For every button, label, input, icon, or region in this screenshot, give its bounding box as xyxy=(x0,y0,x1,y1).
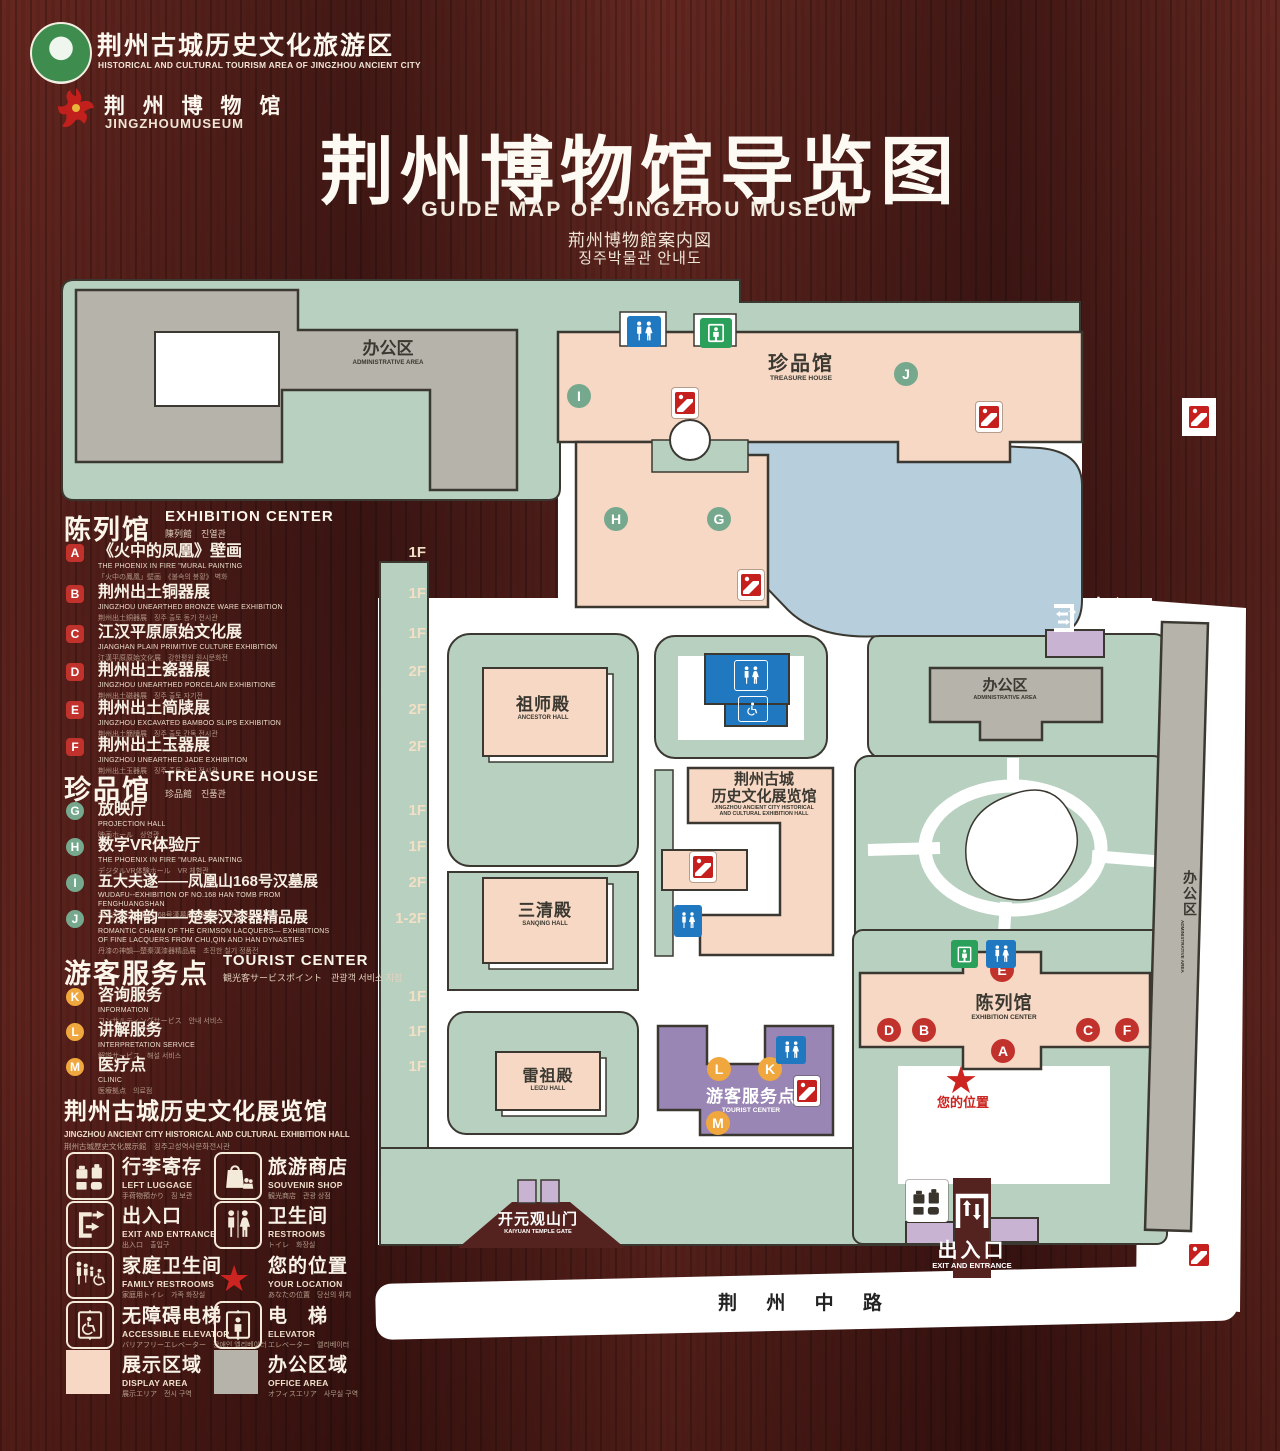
list-item-B: B 荆州出土铜器展 JINGZHOU UNEARTHED BRONZE WARE… xyxy=(66,585,366,623)
badge-F: F xyxy=(66,738,84,756)
label-exhibition-center: 陈列馆 EXHIBITION CENTER xyxy=(970,994,1039,1021)
badge-L: L xyxy=(66,1023,84,1041)
label-exhibition-hall: 荆州古城 历史文化展览馆 JINGZHOU ANCIENT CITY HISTO… xyxy=(711,772,816,817)
floor-J: 1-2F xyxy=(381,910,426,927)
label-treasure-house: 珍品馆 TREASURE HOUSE xyxy=(768,353,834,383)
elevator-icon xyxy=(951,940,978,968)
restroom-icon xyxy=(627,316,661,347)
accessible-elevator-icon xyxy=(66,1301,114,1349)
legend-left-luggage: 行李寄存 LEFT LUGGAGE 手荷物預かり 짐 보관 xyxy=(122,1152,202,1201)
badge-I: I xyxy=(66,874,84,892)
section-title-sub: 陳列館 진열관 xyxy=(165,527,334,540)
restroom-icon xyxy=(776,1036,806,1064)
list-item-M: M 医疗点 CLINIC 医療拠点 의료점 1F xyxy=(66,1058,366,1096)
section-title-en: EXHIBITION CENTER xyxy=(165,508,334,525)
section-title-sub: 珍品館 진품관 xyxy=(165,787,319,800)
floor-F: 2F xyxy=(381,738,426,755)
list-item-A: A 《火中的凤凰》壁画 THE PHOENIX IN FIRE "MURAL P… xyxy=(66,544,366,582)
exit-entrance-icon xyxy=(66,1201,114,1249)
restroom-icon xyxy=(986,940,1016,968)
label-admin-topleft: 办公区 ADMINISTRATIVE AREA xyxy=(351,340,426,366)
admin-topleft-courtyard xyxy=(155,332,279,406)
section-title-sub: 観光客サービスポイント 관광객 서비스 지점 xyxy=(223,971,402,984)
tourism-area-name: 荆州古城历史文化旅游区 xyxy=(97,26,394,62)
map-title-en: GUIDE MAP OF JINGZHOU MUSEUM xyxy=(421,198,858,222)
restrooms-icon xyxy=(214,1201,262,1249)
label-admin-right: 办公区 ADMINISTRATIVE AREA xyxy=(972,678,1039,701)
badge-E: E xyxy=(66,701,84,719)
exhibition-hall-header: 荆州古城历史文化展览馆 JINGZHOU ANCIENT CITY HISTOR… xyxy=(64,1092,384,1152)
section-exhibition-center-header: 陈列馆 EXHIBITION CENTER 陳列館 진열관 xyxy=(64,508,334,547)
escalator-icon xyxy=(1186,1240,1212,1270)
label-admin-strip: 办公区 ADMINISTRATIVE AREA xyxy=(1180,870,1200,973)
restroom-icon xyxy=(734,660,768,691)
floor-L: 1F xyxy=(381,1023,426,1040)
display-area-swatch xyxy=(66,1350,110,1394)
escalator-icon xyxy=(1186,402,1212,432)
marker-B: B xyxy=(912,1018,936,1042)
entrance-arrows-icon xyxy=(954,1192,990,1237)
marker-F: F xyxy=(1115,1018,1139,1042)
restroom-icon xyxy=(674,905,702,937)
section-title: 游客服务点 xyxy=(64,952,209,991)
label-your-location: 您的位置 xyxy=(937,1096,989,1110)
legend-restrooms: 卫生间 RESTROOMS トイレ 화장실 xyxy=(268,1201,328,1250)
legend-display-area: 展示区域 DISPLAY AREA 展示エリア 전시 구역 xyxy=(122,1350,202,1399)
marker-G: G xyxy=(707,507,731,531)
floor-I: 2F xyxy=(381,874,426,891)
label-exit-northeast: 出入口 EXIT AND ENTRANCE xyxy=(1083,598,1161,627)
tourism-area-logo xyxy=(30,22,92,84)
marker-C: C xyxy=(1076,1018,1100,1042)
section-title: 陈列馆 xyxy=(64,508,151,547)
marker-I: I xyxy=(567,384,591,408)
floor-K: 1F xyxy=(381,988,426,1005)
gate-kaiyuan-left xyxy=(518,1180,536,1203)
list-item-H: H 数字VR体验厅 THE PHOENIX IN FIRE "MURAL PAI… xyxy=(66,838,366,876)
list-item-K: K 咨询服务 INFORMATION コンサルティングサービス 안내 서비스 1… xyxy=(66,988,366,1026)
floor-D: 2F xyxy=(381,663,426,680)
list-item-L: L 讲解服务 INTERPRETATION SERVICE 解説サービス 해설 … xyxy=(66,1023,366,1061)
legend-your-location: 您的位置 YOUR LOCATION あなたの位置 당신의 위치 xyxy=(268,1251,351,1300)
museum-name-en: JINGZHOUMUSEUM xyxy=(105,116,244,131)
legend-office-area: 办公区域 OFFICE AREA オフィスエリア 사무실 구역 xyxy=(268,1350,358,1399)
floor-H: 1F xyxy=(381,838,426,855)
section-title-en: TREASURE HOUSE xyxy=(165,768,319,785)
plaza-exhibition xyxy=(898,1066,1110,1184)
left-luggage-icon xyxy=(906,1180,948,1222)
guide-map-poster: 荆州古城历史文化旅游区 HISTORICAL AND CULTURAL TOUR… xyxy=(0,0,1280,1451)
floor-B: 1F xyxy=(381,585,426,602)
label-kaiyuan-gate: 开元观山门 KAIYUAN TEMPLE GATE xyxy=(498,1212,578,1235)
escalator-icon xyxy=(690,852,716,882)
label-ancestor-hall: 祖师殿 ANCESTOR HALL xyxy=(516,696,570,722)
museum-logo xyxy=(54,86,98,132)
marker-M: M xyxy=(706,1111,730,1135)
your-location-icon: ★ xyxy=(218,1258,250,1300)
badge-B: B xyxy=(66,585,84,603)
marker-H: H xyxy=(604,507,628,531)
marker-D: D xyxy=(877,1018,901,1042)
entrance-arrows-icon xyxy=(1050,602,1082,639)
tourism-area-name-en: HISTORICAL AND CULTURAL TOURISM AREA OF … xyxy=(98,60,421,70)
elevator-icon xyxy=(700,318,732,348)
list-item-G: G 放映厅 PROJECTION HALL 映画ホール 상영관 1F xyxy=(66,802,366,840)
badge-K: K xyxy=(66,988,84,1006)
list-item-C: C 江汉平原原始文化展 JIANGHAN PLAIN PRIMITIVE CUL… xyxy=(66,625,366,663)
escalator-icon xyxy=(976,402,1002,432)
floor-C: 1F xyxy=(381,625,426,642)
annex-arch xyxy=(670,420,710,460)
elevator-icon xyxy=(214,1301,262,1349)
marker-A: A xyxy=(991,1039,1015,1063)
marker-J: J xyxy=(894,362,918,386)
hall-title-sub: 荆州古城歴史文化展示館 징주고성역사문화전시관 xyxy=(64,1141,384,1152)
badge-A: A xyxy=(66,544,84,562)
badge-H: H xyxy=(66,838,84,856)
map-title-ko: 징주박물관 안내도 xyxy=(578,247,702,268)
legend-souvenir-shop: 旅游商店 SOUVENIR SHOP 観光商店 관광 상점 xyxy=(268,1152,348,1201)
family-restrooms-icon xyxy=(66,1251,114,1299)
section-title-en: TOURIST CENTER xyxy=(223,952,402,969)
hall-title-en: JINGZHOU ANCIENT CITY HISTORICAL AND CUL… xyxy=(64,1130,384,1139)
label-road: 荆 州 中 路 xyxy=(718,1294,894,1315)
escalator-icon xyxy=(738,570,764,600)
legend-family-restrooms: 家庭卫生间 FAMILY RESTROOMS 家庭用トイレ 가족 화장실 xyxy=(122,1251,222,1300)
label-exit-south: 出入口 EXIT AND ENTRANCE xyxy=(930,1240,1014,1271)
souvenir-shop-icon xyxy=(214,1152,262,1200)
marker-L: L xyxy=(707,1057,731,1081)
hall-title: 荆州古城历史文化展览馆 xyxy=(64,1092,384,1126)
accessible-restroom-icon xyxy=(738,696,768,722)
legend-elevator: 电 梯 ELEVATOR エレベーター 엘리베이터 xyxy=(268,1301,349,1350)
floor-A: 1F xyxy=(381,544,426,561)
list-item-D: D 荆州出土瓷器展 JINGZHOU UNEARTHED PORCELAIN E… xyxy=(66,663,366,701)
badge-C: C xyxy=(66,625,84,643)
gate-south-right xyxy=(990,1218,1038,1242)
floor-G: 1F xyxy=(381,802,426,819)
escalator-icon xyxy=(794,1076,820,1106)
section-tourist-center-header: 游客服务点 TOURIST CENTER 観光客サービスポイント 관광객 서비스… xyxy=(64,952,402,991)
badge-D: D xyxy=(66,663,84,681)
list-item-J: J 丹漆神韵——楚秦汉漆器精品展 ROMANTIC CHARM OF THE C… xyxy=(66,910,366,956)
badge-G: G xyxy=(66,802,84,820)
floor-E: 2F xyxy=(381,701,426,718)
badge-M: M xyxy=(66,1058,84,1076)
left-luggage-icon xyxy=(66,1152,114,1200)
legend-exit-entrance: 出入口 EXIT AND ENTRANCE 出入口 출입구 xyxy=(122,1201,216,1250)
gate-kaiyuan-right xyxy=(541,1180,559,1203)
escalator-icon xyxy=(672,388,698,418)
floor-M: 1F xyxy=(381,1058,426,1075)
label-sanqing-hall: 三清殿 SANQING HALL xyxy=(518,902,572,928)
badge-J: J xyxy=(66,910,84,928)
label-leizu-hall: 雷祖殿 LEIZU HALL xyxy=(522,1068,573,1093)
office-area-swatch xyxy=(214,1350,258,1394)
list-item-E: E 荆州出土简牍展 JINGZHOU EXCAVATED BAMBOO SLIP… xyxy=(66,701,366,739)
